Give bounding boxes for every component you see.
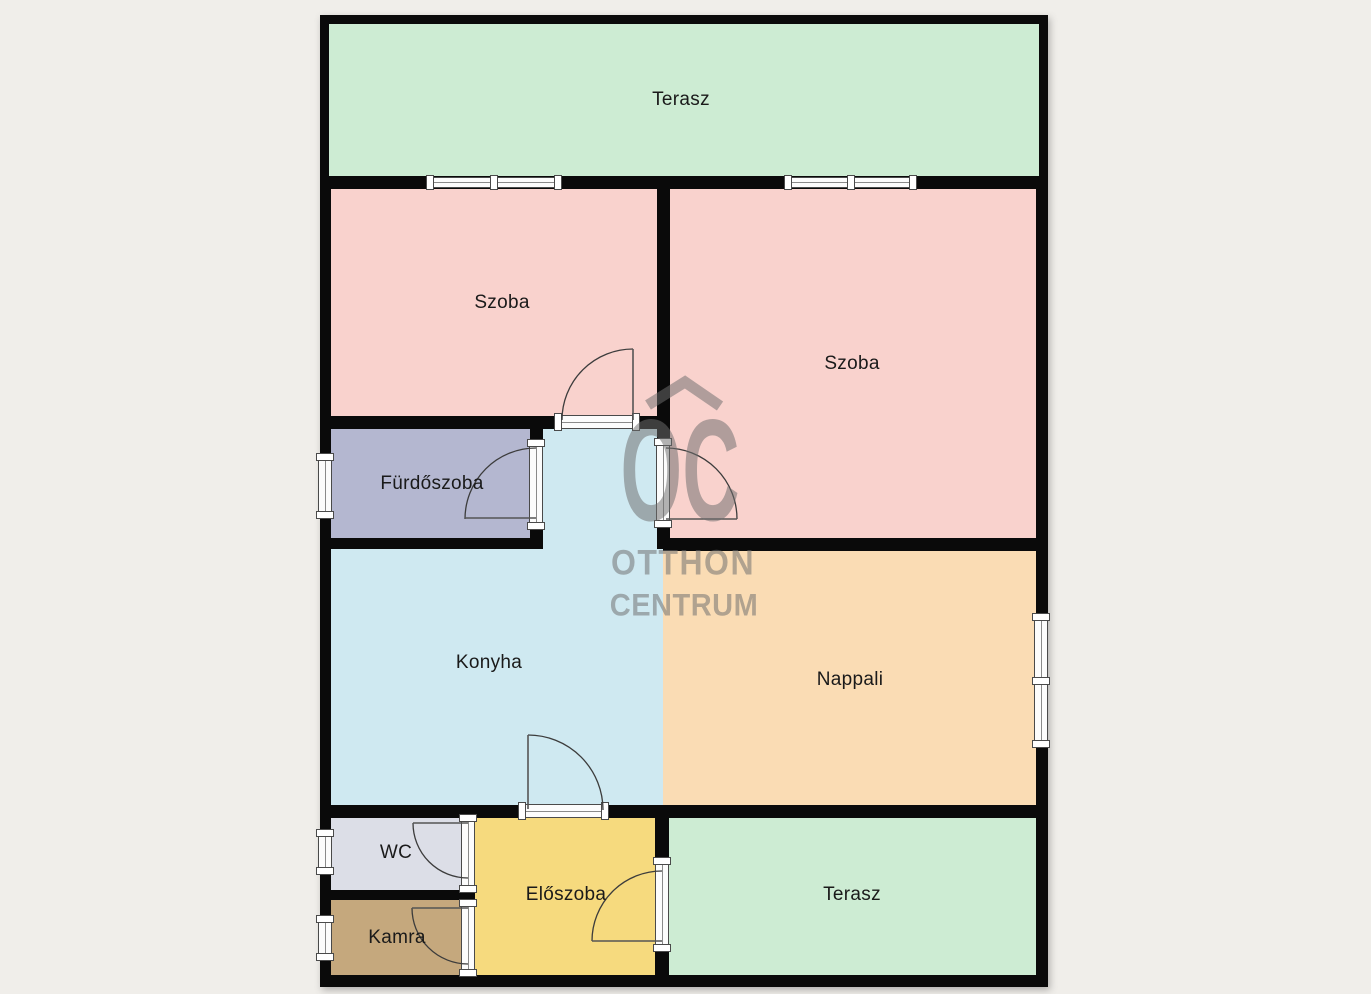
floor-plan: TeraszSzobaSzobaFürdőszobaKonyhaNappaliW…: [0, 0, 1371, 994]
door-frame-wc-glaze: [468, 821, 469, 886]
window-furdoszoba-cap-1: [316, 511, 334, 519]
window-terasz-left-cap-1: [554, 175, 562, 190]
room-label-nappali: Nappali: [817, 669, 884, 691]
window-wc-glaze: [325, 836, 326, 868]
door-frame-konyha-cap-0: [518, 802, 526, 820]
window-nappali-cap-2: [1032, 677, 1050, 685]
window-nappali-cap-0: [1032, 613, 1050, 621]
room-konyha-ext: [543, 429, 657, 549]
window-terasz-left-cap-2: [490, 175, 498, 190]
door-frame-konyha-cap-1: [601, 802, 609, 820]
door-frame-eloszoba-cap-1: [653, 944, 671, 952]
door-frame-kamra-glaze: [468, 906, 469, 970]
door-frame-szoba-left-glaze: [561, 422, 633, 423]
room-label-terasz-bottom: Terasz: [823, 884, 881, 906]
door-frame-konyha-glaze: [525, 811, 602, 812]
room-label-furdoszoba: Fürdőszoba: [380, 473, 483, 495]
room-label-wc: WC: [380, 842, 412, 864]
door-frame-szoba-left-cap-1: [632, 413, 640, 431]
door-frame-furdoszoba-cap-1: [527, 522, 545, 530]
room-label-szoba-left: Szoba: [474, 292, 529, 314]
window-kamra-cap-1: [316, 953, 334, 961]
window-nappali-cap-1: [1032, 740, 1050, 748]
room-label-eloszoba: Előszoba: [526, 884, 607, 906]
door-frame-wc-cap-1: [459, 885, 477, 893]
window-kamra-glaze: [325, 922, 326, 954]
door-frame-kamra-cap-1: [459, 969, 477, 977]
door-frame-szoba-right-cap-0: [654, 438, 672, 446]
room-label-szoba-right: Szoba: [824, 353, 879, 375]
room-label-kamra: Kamra: [368, 927, 425, 949]
window-terasz-right-cap-1: [909, 175, 917, 190]
door-frame-furdoszoba-glaze: [536, 446, 537, 523]
door-frame-wc-cap-0: [459, 814, 477, 822]
window-terasz-right-cap-2: [847, 175, 855, 190]
window-terasz-right-cap-0: [784, 175, 792, 190]
room-konyha: [331, 549, 663, 805]
window-terasz-left-cap-0: [426, 175, 434, 190]
door-frame-szoba-right-glaze: [663, 445, 664, 521]
door-frame-eloszoba-cap-0: [653, 857, 671, 865]
window-furdoszoba-glaze: [325, 460, 326, 512]
door-frame-szoba-left-cap-0: [554, 413, 562, 431]
door-frame-eloszoba-glaze: [662, 864, 663, 945]
door-frame-szoba-right-cap-1: [654, 520, 672, 528]
door-frame-kamra-cap-0: [459, 899, 477, 907]
room-label-terasz-top: Terasz: [652, 89, 710, 111]
window-furdoszoba-cap-0: [316, 453, 334, 461]
door-frame-furdoszoba-cap-0: [527, 439, 545, 447]
window-wc-cap-1: [316, 867, 334, 875]
window-kamra-cap-0: [316, 915, 334, 923]
window-wc-cap-0: [316, 829, 334, 837]
room-label-konyha: Konyha: [456, 652, 522, 674]
